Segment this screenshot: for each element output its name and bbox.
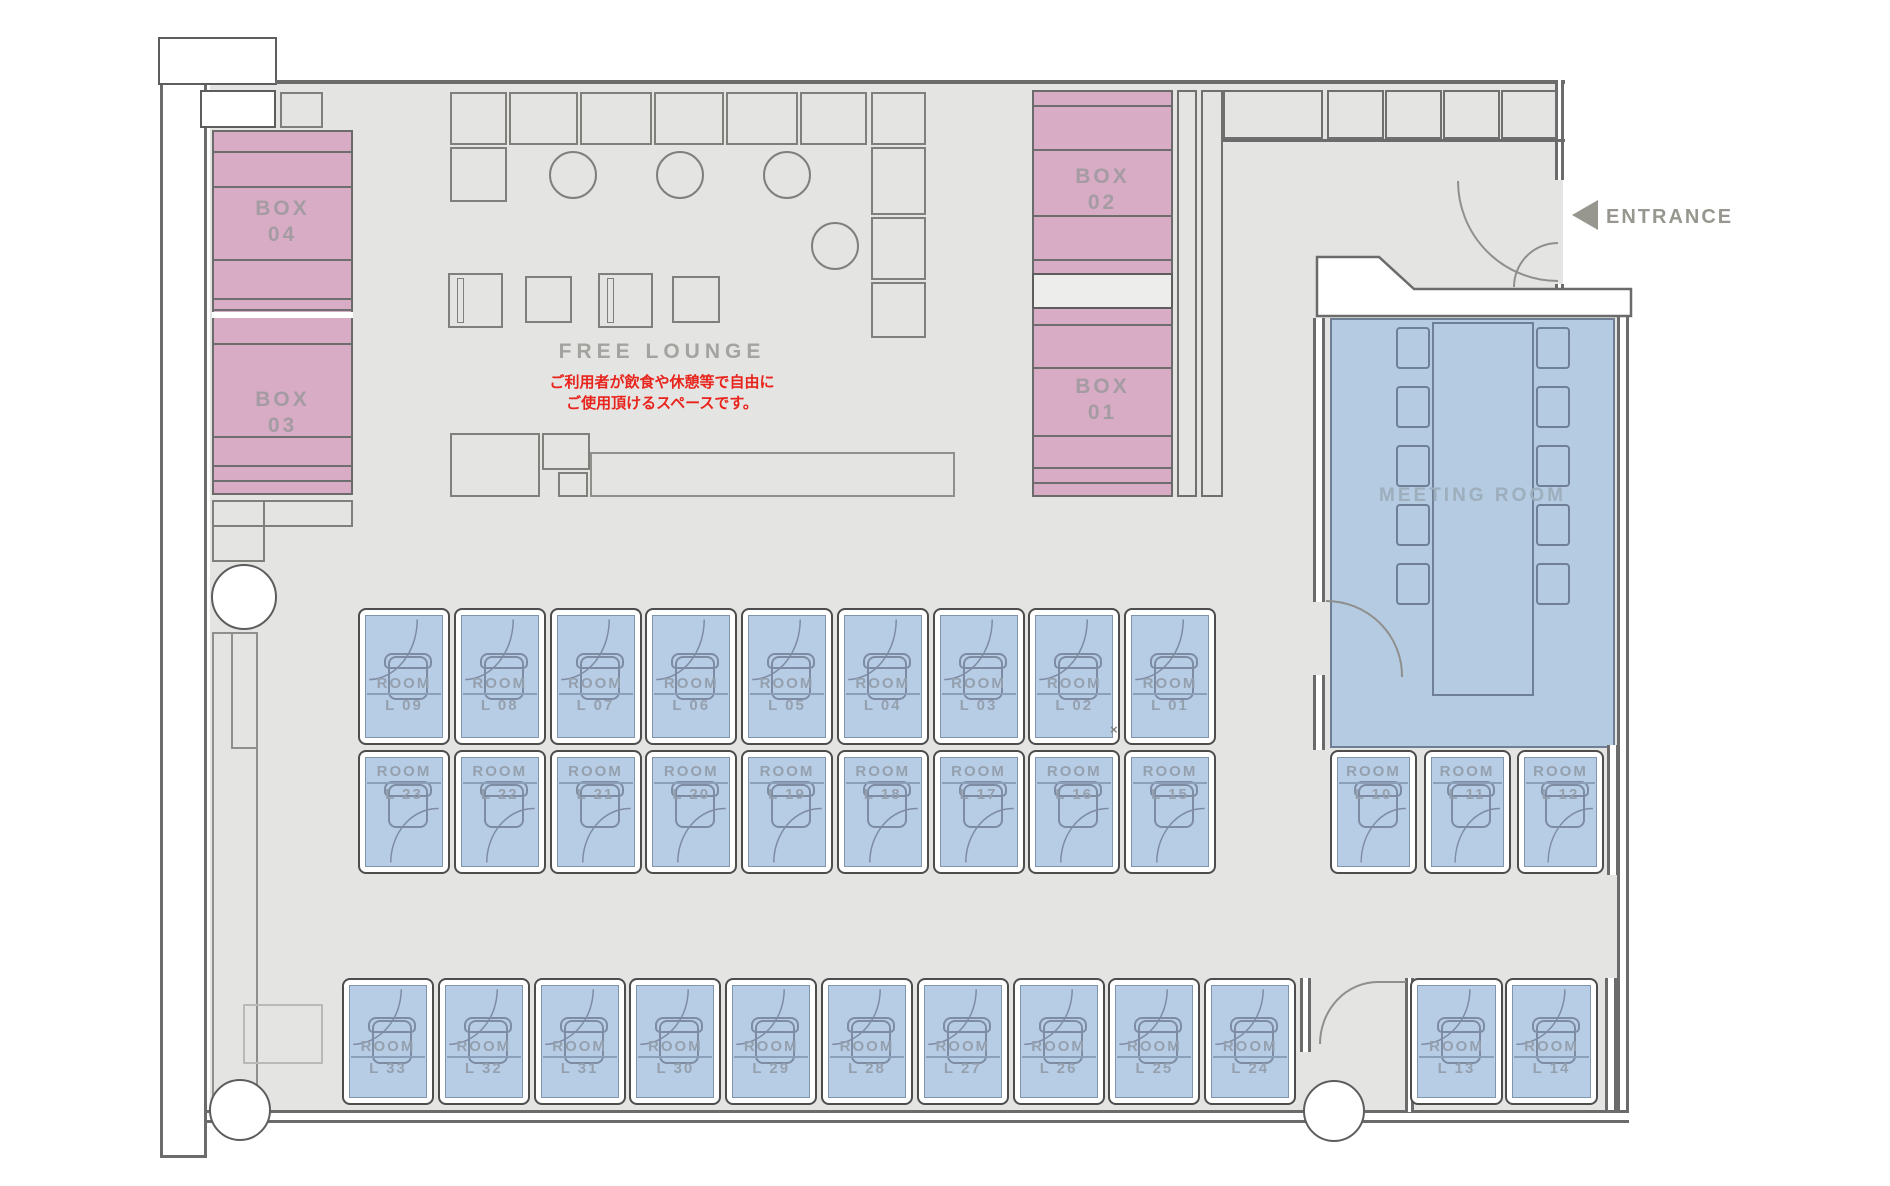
- room-divider: [1526, 782, 1595, 784]
- cabinet: [1327, 90, 1384, 139]
- cabinet: [1223, 90, 1323, 139]
- wall-right-main: [1617, 288, 1629, 1123]
- room-label: ROOM: [1426, 763, 1509, 780]
- lounge-sofa: [580, 92, 652, 145]
- meeting-chair: [1396, 563, 1430, 605]
- room-divider: [846, 782, 920, 784]
- room-number: L 25: [1110, 1060, 1198, 1077]
- cabinet: [1443, 90, 1500, 139]
- box-divider: [1034, 482, 1171, 484]
- room-label: ROOM: [1519, 763, 1602, 780]
- room-label: ROOM: [360, 763, 448, 780]
- room-l-20: ROOML 20: [645, 750, 737, 874]
- service-shaft-inner: [231, 632, 258, 749]
- storage-box: [280, 92, 323, 128]
- room-label: ROOM: [1507, 1038, 1596, 1055]
- room-l-13: ROOML 13: [1410, 978, 1503, 1105]
- room-l-08: ROOML 08: [454, 608, 546, 745]
- meeting-chair: [1396, 386, 1430, 428]
- box-divider: [214, 259, 351, 261]
- room-label: ROOM: [1332, 763, 1415, 780]
- entrance-arrow-icon: [1572, 200, 1598, 230]
- column: [1303, 1080, 1365, 1142]
- room-l-14: ROOML 14: [1505, 978, 1598, 1105]
- partition-wall: [1201, 90, 1223, 497]
- meeting-chair: [1536, 504, 1570, 546]
- meeting-room-wall-left: [1313, 318, 1325, 602]
- room-number: L 33: [344, 1060, 432, 1077]
- room-divider: [1213, 1056, 1287, 1058]
- box-divider: [1034, 367, 1171, 369]
- box-divider: [1034, 259, 1171, 261]
- room-label: ROOM: [536, 1038, 624, 1055]
- box-divider: [1034, 149, 1171, 151]
- side-counter: [212, 500, 265, 562]
- room-number: L 18: [839, 786, 927, 803]
- box-divider: [214, 480, 351, 482]
- column: [209, 1079, 271, 1141]
- cabinet: [1385, 90, 1442, 139]
- room-l-26: ROOML 26: [1013, 978, 1105, 1105]
- partition-wall: [1177, 90, 1197, 497]
- room-label: ROOM: [1126, 675, 1214, 692]
- cross-mark: ×: [1110, 722, 1118, 737]
- meeting-chair: [1396, 504, 1430, 546]
- room-l-25: ROOML 25: [1108, 978, 1200, 1105]
- room-l-12: ROOML 12: [1517, 750, 1604, 874]
- lounge-armchair: [448, 273, 503, 328]
- box-divider: [1034, 435, 1171, 437]
- room-label: ROOM: [552, 675, 640, 692]
- lounge-round-table: [549, 151, 597, 199]
- room-l-32: ROOML 32: [438, 978, 530, 1105]
- kitchen-counter: [542, 433, 590, 470]
- meeting-room-wall-left: [1313, 675, 1325, 750]
- room-number: L 23: [360, 786, 448, 803]
- room-label: ROOM: [743, 675, 831, 692]
- wall-right-of-L14: [1605, 978, 1617, 1110]
- box-divider: [1034, 105, 1171, 107]
- room-number: L 28: [823, 1060, 911, 1077]
- room-number: L 19: [743, 786, 831, 803]
- room-label: ROOM: [839, 763, 927, 780]
- lounge-sofa: [450, 92, 507, 145]
- room-divider: [654, 782, 728, 784]
- room-l-04: ROOML 04: [837, 608, 929, 745]
- room-label: ROOM: [1110, 1038, 1198, 1055]
- room-l-33: ROOML 33: [342, 978, 434, 1105]
- armchair-armrest: [457, 278, 464, 323]
- room-label: ROOM: [552, 763, 640, 780]
- box-divider: [214, 298, 351, 300]
- room-divider: [447, 1056, 521, 1058]
- box-column-left: BOX04BOX03: [212, 130, 353, 495]
- wall-top: [275, 80, 1565, 84]
- room-number: L 04: [839, 697, 927, 714]
- room-divider: [1339, 782, 1408, 784]
- room-l-11: ROOML 11: [1424, 750, 1511, 874]
- room-l-22: ROOML 22: [454, 750, 546, 874]
- room-divider: [1037, 782, 1111, 784]
- room-l-29: ROOML 29: [725, 978, 817, 1105]
- meeting-chair: [1536, 445, 1570, 487]
- floor-plan: ENTRANCE BOX04BOX03 BOX02BOX01 FREE LOUN…: [0, 0, 1890, 1186]
- box-divider: [214, 151, 351, 153]
- room-l-31: ROOML 31: [534, 978, 626, 1105]
- meeting-chair: [1396, 445, 1430, 487]
- wall-bottom: [207, 1110, 1629, 1123]
- room-l-24: ROOML 24: [1204, 978, 1296, 1105]
- room-divider: [1433, 782, 1502, 784]
- room-label: ROOM: [743, 763, 831, 780]
- wall-under-cabinets: [1223, 139, 1565, 142]
- room-number: L 15: [1126, 786, 1214, 803]
- room-divider: [926, 1056, 1000, 1058]
- room-l-27: ROOML 27: [917, 978, 1009, 1105]
- room-number: L 13: [1412, 1060, 1501, 1077]
- room-label: ROOM: [456, 675, 544, 692]
- meeting-room-door-arc: [1325, 600, 1405, 679]
- room-l-17: ROOML 17: [933, 750, 1025, 874]
- room-divider: [846, 693, 920, 695]
- room-label: ROOM: [456, 763, 544, 780]
- room-label: ROOM: [440, 1038, 528, 1055]
- room-l-21: ROOML 21: [550, 750, 642, 874]
- room-l-16: ROOML 16: [1028, 750, 1120, 874]
- kitchen-counter: [558, 472, 588, 497]
- box-label: BOX01: [1034, 374, 1171, 426]
- entrance-door-arc: [1452, 177, 1566, 291]
- room-l-28: ROOML 28: [821, 978, 913, 1105]
- box-shelf: [1032, 273, 1173, 309]
- room-label: ROOM: [935, 763, 1023, 780]
- room-number: L 12: [1519, 786, 1602, 803]
- room-number: L 27: [919, 1060, 1007, 1077]
- room-divider: [1117, 1056, 1191, 1058]
- box-divider: [214, 309, 351, 311]
- room-l-18: ROOML 18: [837, 750, 929, 874]
- meeting-chair: [1536, 327, 1570, 369]
- room-divider: [942, 693, 1016, 695]
- room-number: L 08: [456, 697, 544, 714]
- box-divider: [214, 343, 351, 345]
- lounge-round-table: [763, 151, 811, 199]
- room-l-09: ROOML 09: [358, 608, 450, 745]
- meeting-room: MEETING ROOM: [1330, 318, 1615, 748]
- room-divider: [1419, 1056, 1494, 1058]
- room-divider: [654, 693, 728, 695]
- wall-notch-topleft: [158, 37, 277, 85]
- meeting-table: [1432, 322, 1534, 696]
- lounge-sofa: [672, 276, 720, 323]
- lounge-sofa: [871, 147, 926, 215]
- armchair-armrest: [607, 278, 614, 323]
- room-l-06: ROOML 06: [645, 608, 737, 745]
- room-number: L 31: [536, 1060, 624, 1077]
- room-number: L 11: [1426, 786, 1509, 803]
- lounge-sofa: [726, 92, 798, 145]
- column: [211, 564, 277, 630]
- room-number: L 22: [456, 786, 544, 803]
- room-number: L 24: [1206, 1060, 1294, 1077]
- long-counter: [590, 452, 955, 497]
- wall-right-of-L12: [1607, 745, 1619, 875]
- room-number: L 21: [552, 786, 640, 803]
- room-divider: [750, 693, 824, 695]
- room-number: L 03: [935, 697, 1023, 714]
- notice-line-2: ご使用頂けるスペースです。: [549, 393, 774, 414]
- room-label: ROOM: [727, 1038, 815, 1055]
- room-number: L 01: [1126, 697, 1214, 714]
- room-number: L 32: [440, 1060, 528, 1077]
- room-divider: [1037, 693, 1111, 695]
- room-label: ROOM: [1412, 1038, 1501, 1055]
- room-divider: [1022, 1056, 1096, 1058]
- room-label: ROOM: [631, 1038, 719, 1055]
- entrance-label: ENTRANCE: [1606, 206, 1733, 229]
- lounge-armchair: [598, 273, 653, 328]
- lounge-round-table: [811, 222, 859, 270]
- box-divider: [214, 186, 351, 188]
- meeting-chair: [1396, 327, 1430, 369]
- lounge-sofa: [654, 92, 724, 145]
- room-l-03: ROOML 03: [933, 608, 1025, 745]
- room-number: L 20: [647, 786, 735, 803]
- room-divider: [638, 1056, 712, 1058]
- room-label: ROOM: [360, 675, 448, 692]
- room-l-02: ROOML 02: [1028, 608, 1120, 745]
- box-label: BOX03: [214, 387, 351, 439]
- room-number: L 30: [631, 1060, 719, 1077]
- room-number: L 29: [727, 1060, 815, 1077]
- room-l-05: ROOML 05: [741, 608, 833, 745]
- lounge-sofa: [871, 282, 926, 338]
- lounge-sofa: [509, 92, 578, 145]
- meeting-chair: [1536, 386, 1570, 428]
- room-l-07: ROOML 07: [550, 608, 642, 745]
- room-number: L 07: [552, 697, 640, 714]
- room-divider: [559, 782, 633, 784]
- floor-mat: [243, 1004, 323, 1064]
- room-label: ROOM: [1030, 675, 1118, 692]
- meeting-room-label: MEETING ROOM: [1332, 485, 1613, 507]
- box-label: BOX04: [214, 196, 351, 248]
- room-divider: [543, 1056, 617, 1058]
- room-divider: [463, 693, 537, 695]
- room-l-10: ROOML 10: [1330, 750, 1417, 874]
- room-divider: [463, 782, 537, 784]
- room-number: L 10: [1332, 786, 1415, 803]
- room-label: ROOM: [823, 1038, 911, 1055]
- room-label: ROOM: [935, 675, 1023, 692]
- free-lounge-notice: ご利用者が飲食や休憩等で自由に ご使用頂けるスペースです。: [549, 372, 774, 414]
- storage-box: [200, 90, 276, 128]
- room-divider: [351, 1056, 425, 1058]
- box-divider: [1034, 324, 1171, 326]
- lounge-sofa: [871, 92, 926, 145]
- room-l-19: ROOML 19: [741, 750, 833, 874]
- room-label: ROOM: [1206, 1038, 1294, 1055]
- meeting-chair: [1536, 563, 1570, 605]
- room-divider: [1514, 1056, 1589, 1058]
- box-label: BOX02: [1034, 164, 1171, 216]
- room-l-01: ROOML 01: [1124, 608, 1216, 745]
- wall-left: [160, 37, 207, 1158]
- room-divider: [942, 782, 1016, 784]
- room-number: L 17: [935, 786, 1023, 803]
- room-number: L 26: [1015, 1060, 1103, 1077]
- room-divider: [367, 693, 441, 695]
- room-label: ROOM: [647, 675, 735, 692]
- box-divider: [214, 465, 351, 467]
- lounge-sofa: [450, 147, 507, 202]
- room-number: L 05: [743, 697, 831, 714]
- corridor-wall: [1300, 978, 1311, 1052]
- room-number: L 14: [1507, 1060, 1596, 1077]
- room-label: ROOM: [1126, 763, 1214, 780]
- cabinet: [1501, 90, 1557, 139]
- room-divider: [1133, 693, 1207, 695]
- room-l-30: ROOML 30: [629, 978, 721, 1105]
- room-label: ROOM: [647, 763, 735, 780]
- lounge-round-table: [656, 151, 704, 199]
- lounge-sofa: [871, 217, 926, 280]
- room-divider: [1133, 782, 1207, 784]
- lounge-sofa: [800, 92, 867, 145]
- room-label: ROOM: [344, 1038, 432, 1055]
- room-label: ROOM: [1030, 763, 1118, 780]
- room-label: ROOM: [839, 675, 927, 692]
- room-divider: [367, 782, 441, 784]
- corridor-door-arc: [1316, 980, 1410, 1048]
- room-label: ROOM: [919, 1038, 1007, 1055]
- room-divider: [750, 782, 824, 784]
- kitchen-counter: [450, 433, 540, 497]
- lounge-sofa: [525, 276, 572, 323]
- room-divider: [830, 1056, 904, 1058]
- room-number: L 09: [360, 697, 448, 714]
- room-divider: [559, 693, 633, 695]
- room-number: L 02: [1030, 697, 1118, 714]
- room-number: L 06: [647, 697, 735, 714]
- room-l-23: ROOML 23: [358, 750, 450, 874]
- notice-line-1: ご利用者が飲食や休憩等で自由に: [549, 372, 774, 393]
- room-label: ROOM: [1015, 1038, 1103, 1055]
- free-lounge-label: FREE LOUNGE: [559, 340, 766, 364]
- room-number: L 16: [1030, 786, 1118, 803]
- box-gap: [212, 312, 353, 318]
- room-divider: [734, 1056, 808, 1058]
- box-divider: [1034, 467, 1171, 469]
- room-l-15: ROOML 15: [1124, 750, 1216, 874]
